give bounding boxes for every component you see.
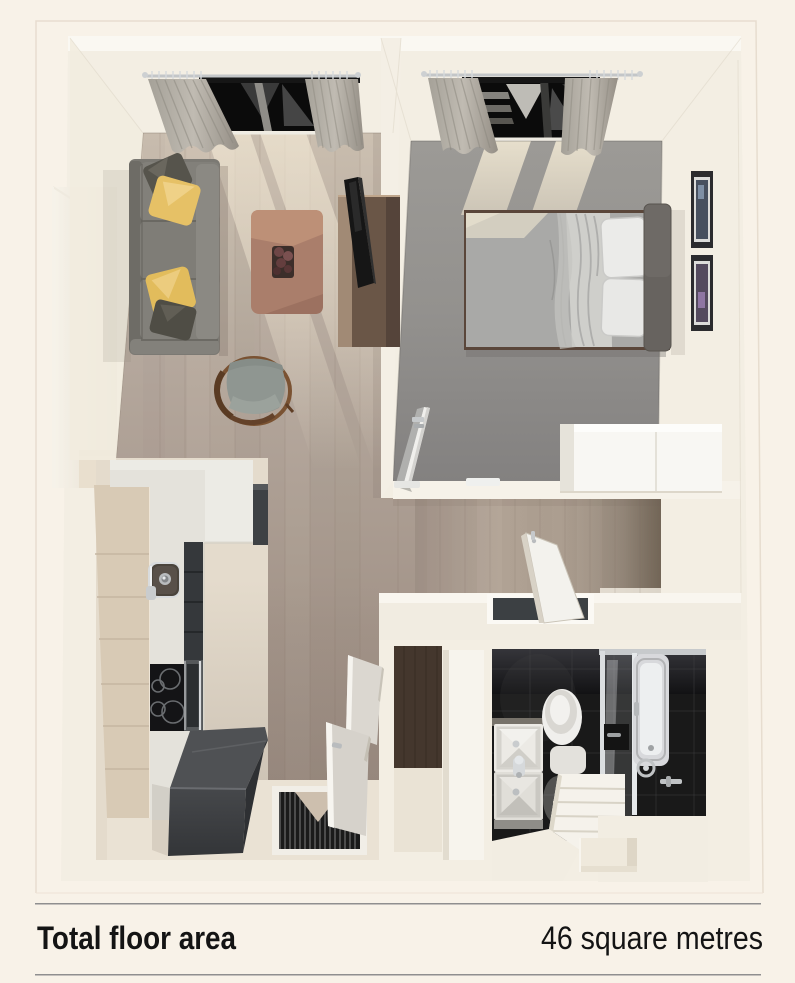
svg-text:Total floor area: Total floor area — [37, 920, 236, 956]
svg-text:46 square metres: 46 square metres — [541, 920, 763, 956]
